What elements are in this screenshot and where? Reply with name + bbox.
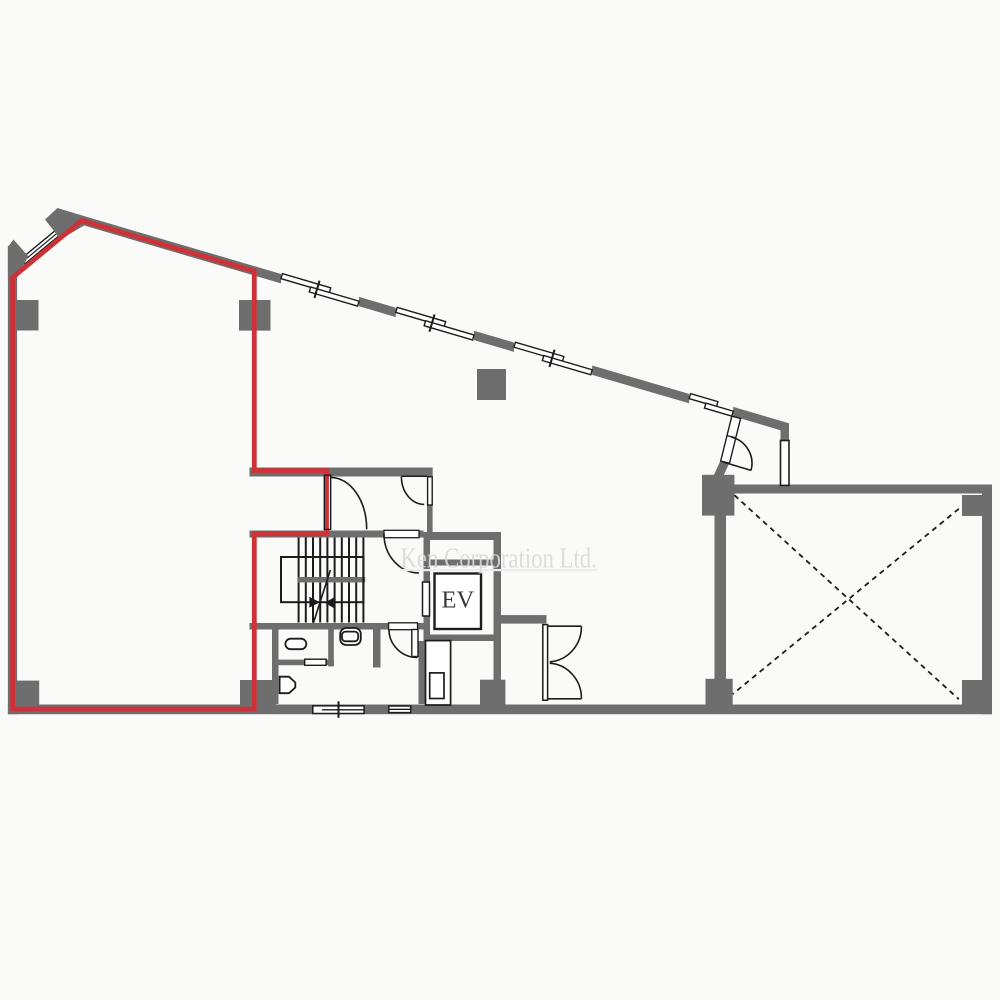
svg-text:Ken Corporation Ltd.: Ken Corporation Ltd.	[401, 542, 597, 574]
svg-text:EV: EV	[442, 586, 475, 613]
